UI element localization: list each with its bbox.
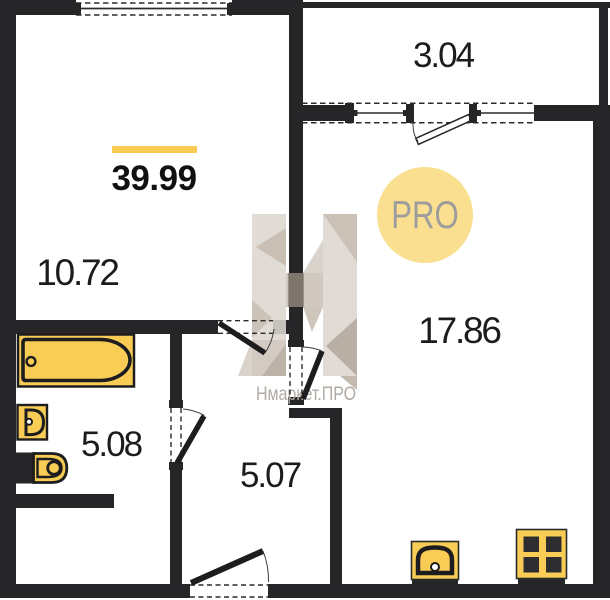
svg-text:17.86: 17.86 xyxy=(418,310,500,351)
svg-text:5.08: 5.08 xyxy=(81,425,142,464)
svg-text:PRO: PRO xyxy=(391,194,459,237)
svg-text:5.07: 5.07 xyxy=(240,456,301,495)
svg-text:39.99: 39.99 xyxy=(111,159,196,198)
svg-text:10.72: 10.72 xyxy=(36,252,118,293)
svg-text:3.04: 3.04 xyxy=(413,36,475,75)
